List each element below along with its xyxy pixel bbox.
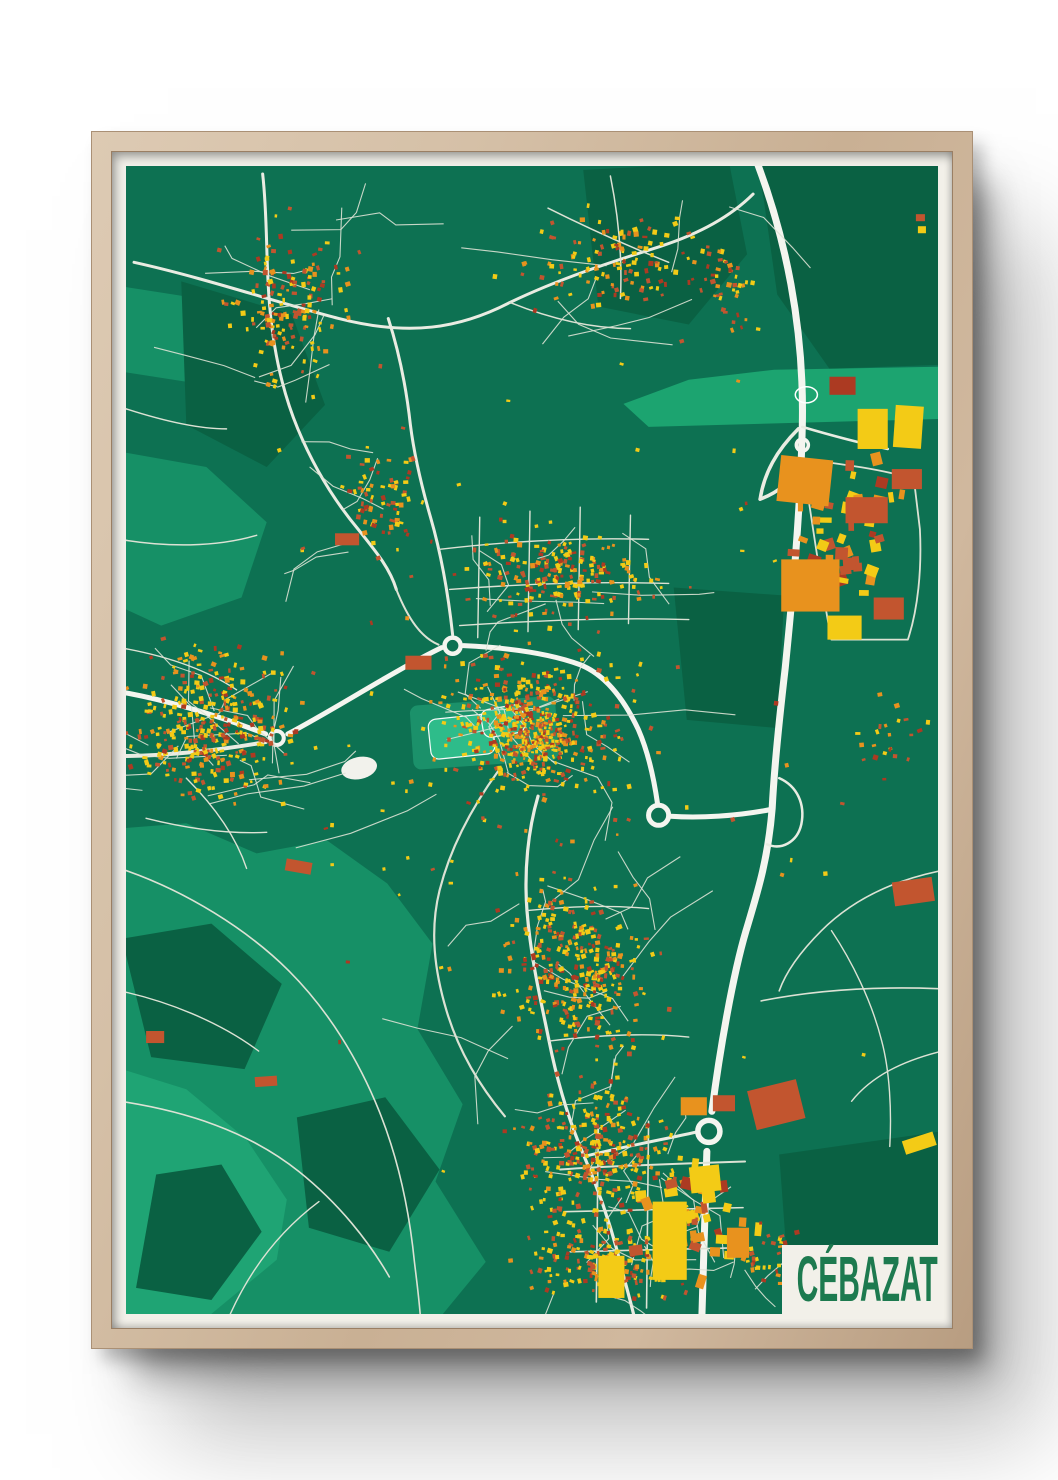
wall-background: CÉBAZAT <box>0 0 1058 1480</box>
map-poster: CÉBAZAT <box>126 166 938 1314</box>
poster-mat: CÉBAZAT <box>112 152 952 1328</box>
map-title-box: CÉBAZAT <box>782 1245 938 1314</box>
poster-frame: CÉBAZAT <box>92 132 972 1348</box>
city-map <box>126 166 938 1314</box>
map-title: CÉBAZAT <box>797 1248 938 1312</box>
